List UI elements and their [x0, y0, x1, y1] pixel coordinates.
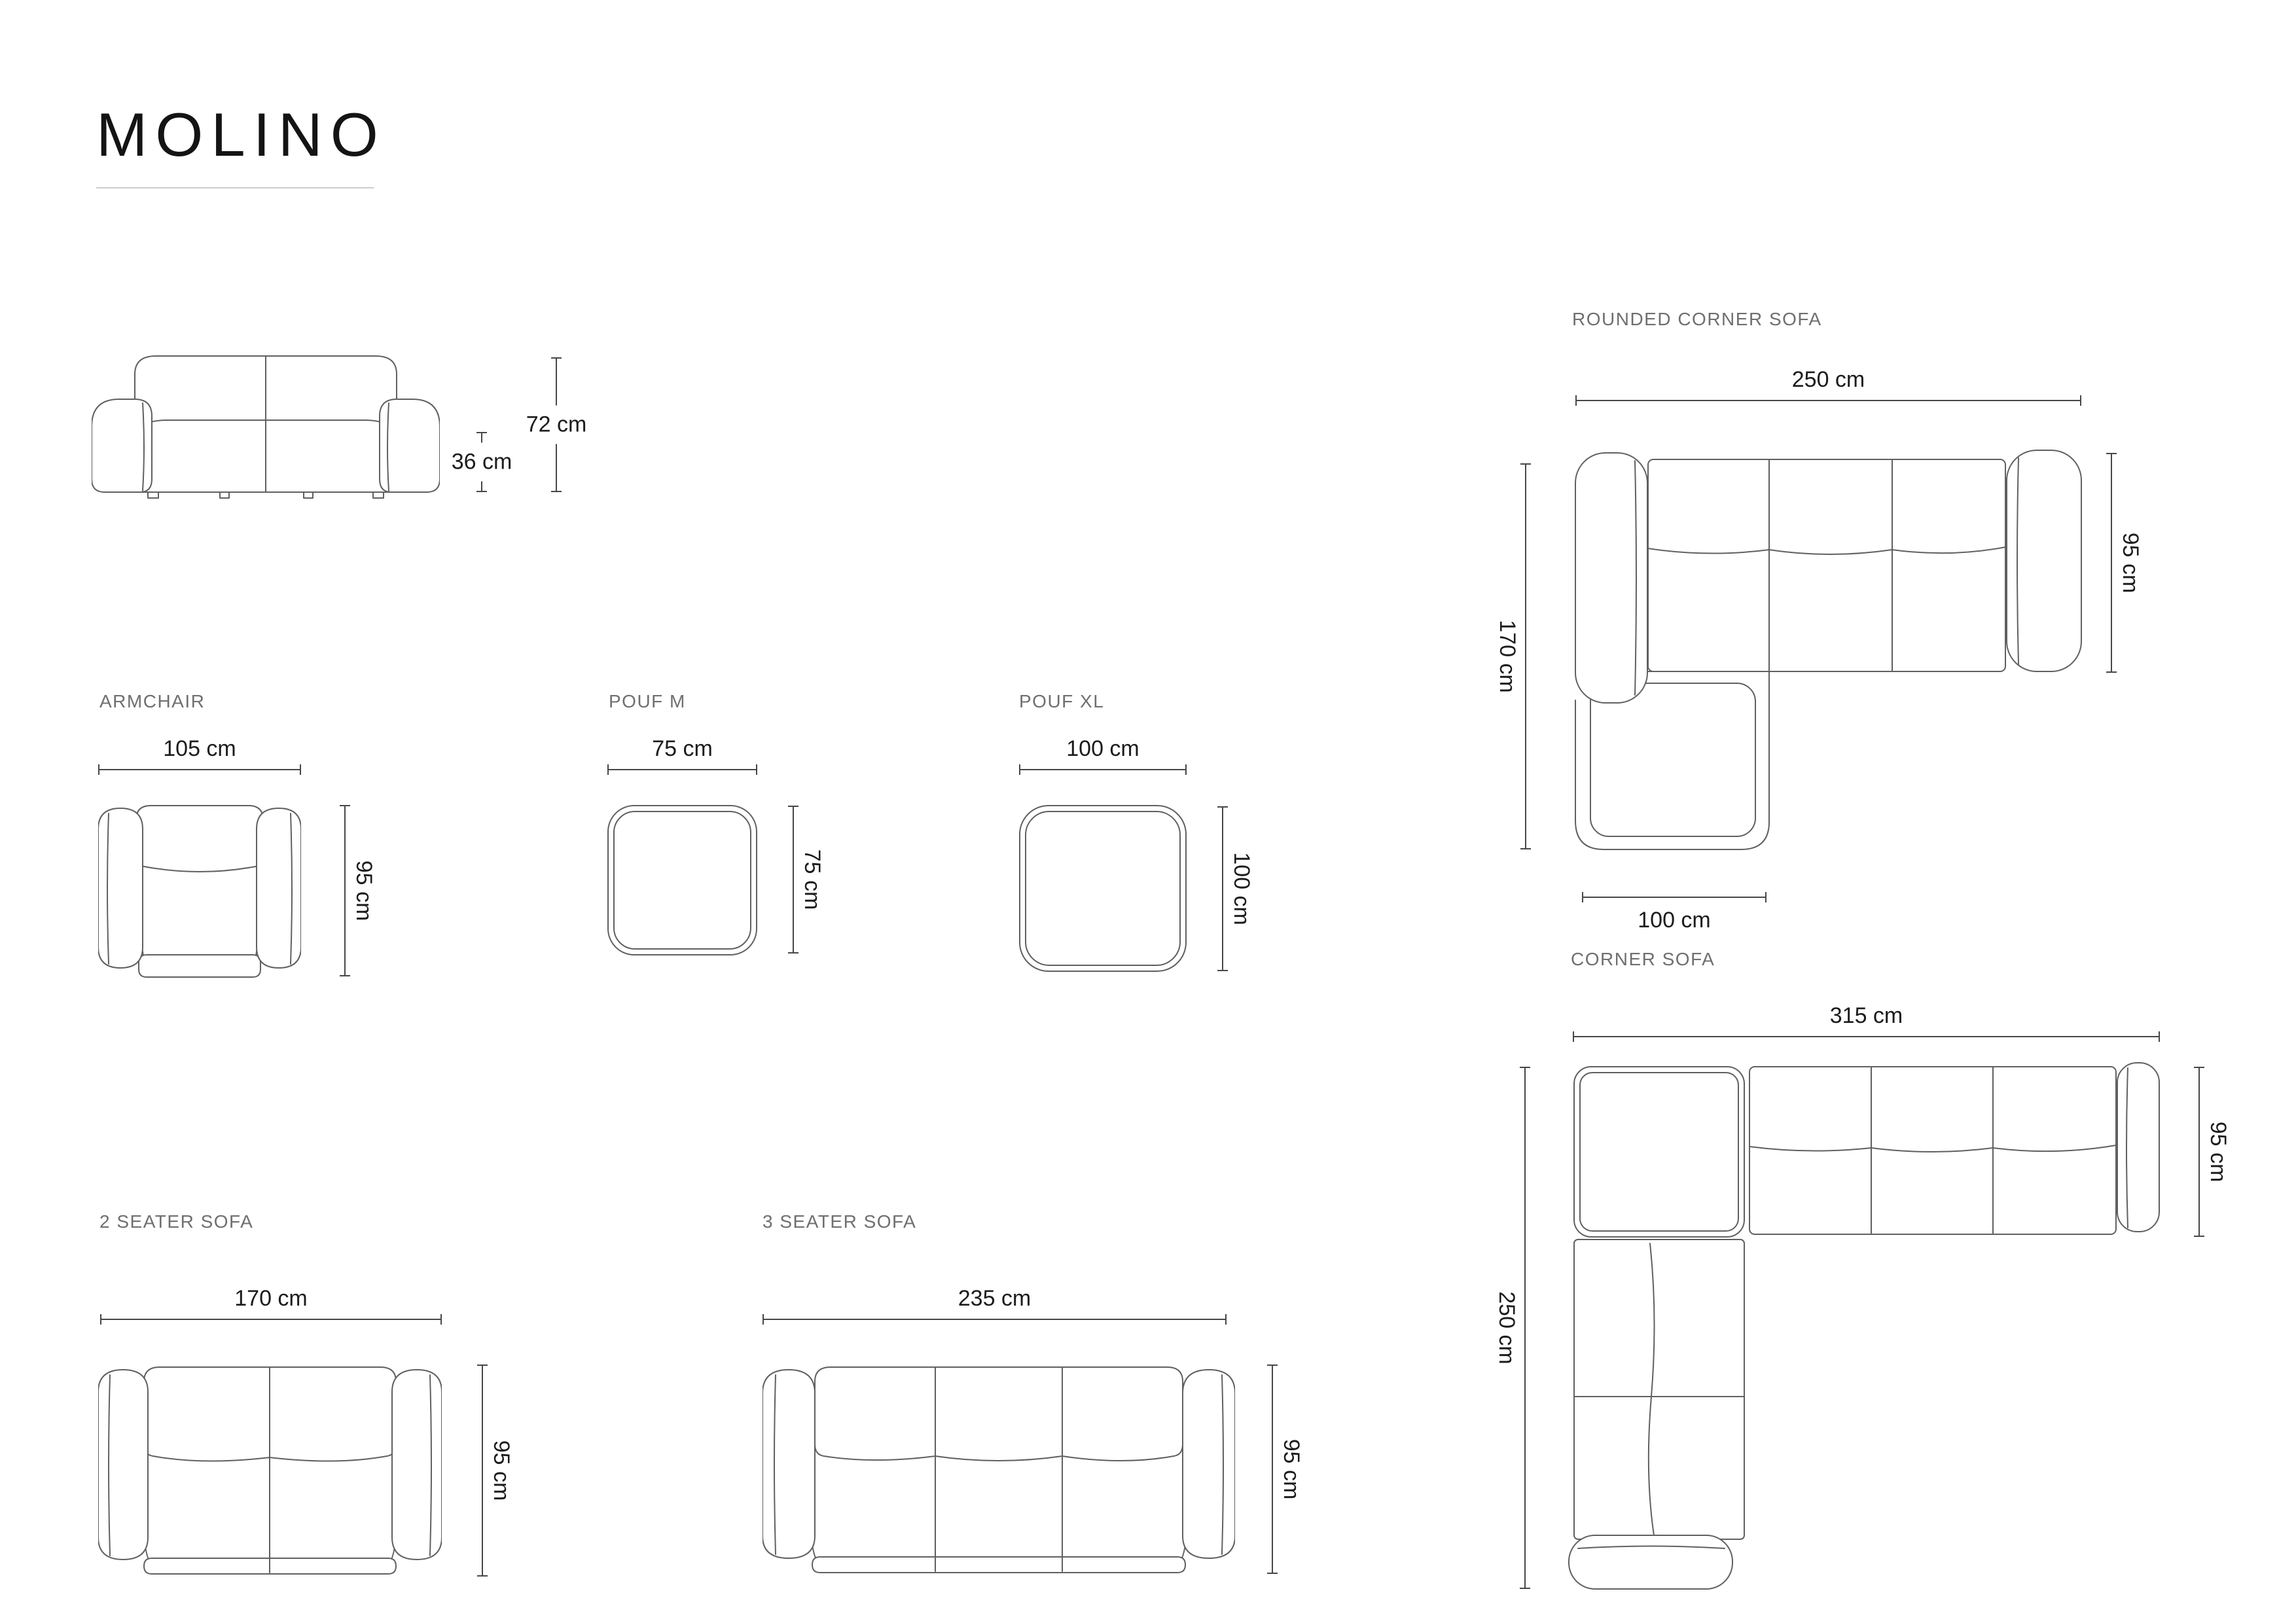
dim-label: 75 cm — [652, 736, 713, 762]
dim-tick — [477, 1575, 488, 1577]
dim-line — [1019, 769, 1187, 770]
dim-line — [793, 806, 794, 954]
dim-tick — [1520, 1067, 1530, 1068]
dim-tick — [2106, 453, 2117, 454]
dim-tick — [440, 1314, 442, 1325]
two-seater-drawing — [98, 1364, 442, 1577]
dim-tick — [2194, 1236, 2204, 1237]
dim-tick — [2194, 1067, 2204, 1068]
dim-tick — [340, 975, 350, 976]
section-label-corner-sofa: CORNER SOFA — [1571, 949, 1715, 970]
dim-tick — [788, 806, 798, 807]
armchair-drawing — [98, 803, 301, 978]
dim-label: 72 cm — [525, 406, 588, 444]
dim-line — [100, 1319, 442, 1320]
rounded-corner-sofa-drawing — [1571, 419, 2094, 864]
dim-tick — [1185, 764, 1187, 775]
section-label-armchair: ARMCHAIR — [99, 691, 205, 712]
dim-tick — [607, 764, 609, 775]
dim-tick — [1520, 848, 1531, 849]
dim-line — [1525, 463, 1526, 849]
dim-label: 95 cm — [2117, 533, 2143, 594]
dim-tick — [551, 357, 562, 359]
dim-tick — [1267, 1573, 1278, 1574]
dim-line — [1573, 1036, 2160, 1037]
pouf-xl-drawing — [1019, 805, 1187, 972]
dim-line — [1575, 400, 2081, 401]
dim-tick — [476, 432, 487, 433]
dim-line — [1222, 806, 1223, 971]
dim-tick — [788, 952, 798, 954]
dim-tick — [476, 491, 487, 492]
dim-tick — [1520, 463, 1531, 465]
section-label-rounded-corner-sofa: ROUNDED CORNER SOFA — [1572, 309, 1822, 330]
spec-sheet: MOLINO 36 cm 72 cm ROUNDED CORNER SOF — [0, 0, 2296, 1623]
dim-tick — [2080, 395, 2081, 406]
dim-tick — [551, 491, 562, 492]
three-seater-drawing — [762, 1364, 1235, 1575]
title-underline — [96, 187, 374, 188]
dim-line — [1524, 1067, 1526, 1589]
dim-label: 235 cm — [958, 1286, 1031, 1311]
dim-line — [482, 1364, 483, 1577]
section-label-two-seater: 2 SEATER SOFA — [99, 1211, 253, 1232]
dim-label: 250 cm — [1792, 367, 1865, 393]
dim-tick — [1765, 892, 1767, 902]
corner-sofa-drawing — [1568, 1061, 2163, 1592]
dim-tick — [1217, 970, 1228, 971]
dim-label: 95 cm — [2205, 1122, 2231, 1183]
dim-tick — [1582, 892, 1583, 902]
pouf-m-drawing — [607, 805, 757, 955]
dim-label: 36 cm — [450, 443, 514, 482]
dim-tick — [1019, 764, 1020, 775]
dim-line — [344, 805, 346, 976]
dim-label: 170 cm — [234, 1286, 308, 1311]
dim-tick — [98, 764, 99, 775]
dim-tick — [1217, 806, 1228, 808]
dim-tick — [1267, 1364, 1278, 1366]
page-title: MOLINO — [96, 99, 386, 170]
dim-label: 100 cm — [1066, 736, 1139, 762]
dim-tick — [1575, 395, 1577, 406]
dim-tick — [1225, 1314, 1227, 1325]
section-label-three-seater: 3 SEATER SOFA — [762, 1211, 916, 1232]
dim-tick — [300, 764, 301, 775]
dim-label: 250 cm — [1494, 1291, 1519, 1364]
sofa-front-view-drawing — [92, 353, 440, 505]
dim-line — [607, 769, 757, 770]
dim-tick — [100, 1314, 101, 1325]
section-label-pouf-m: POUF M — [609, 691, 686, 712]
dim-tick — [756, 764, 757, 775]
dim-line — [762, 1319, 1227, 1320]
dim-tick — [477, 1364, 488, 1366]
dim-label: 75 cm — [799, 849, 825, 910]
dim-label: 105 cm — [163, 736, 236, 762]
dim-label: 95 cm — [1278, 1439, 1304, 1500]
dim-label: 100 cm — [1229, 852, 1254, 925]
dim-tick — [762, 1314, 764, 1325]
dim-line — [1272, 1364, 1273, 1574]
dim-tick — [2159, 1031, 2160, 1042]
dim-line — [2198, 1067, 2200, 1237]
dim-tick — [340, 805, 350, 806]
dim-label: 95 cm — [351, 861, 376, 921]
dim-line — [1582, 897, 1767, 898]
dim-label: 100 cm — [1638, 908, 1711, 933]
dim-label: 95 cm — [488, 1440, 514, 1501]
dim-line — [98, 769, 301, 770]
dim-tick — [2106, 671, 2117, 673]
dim-tick — [1520, 1588, 1530, 1589]
section-label-pouf-xl: POUF XL — [1019, 691, 1104, 712]
dim-label: 315 cm — [1830, 1003, 1903, 1029]
dim-label: 170 cm — [1494, 620, 1520, 693]
dim-line — [2111, 453, 2112, 673]
dim-tick — [1573, 1031, 1574, 1042]
